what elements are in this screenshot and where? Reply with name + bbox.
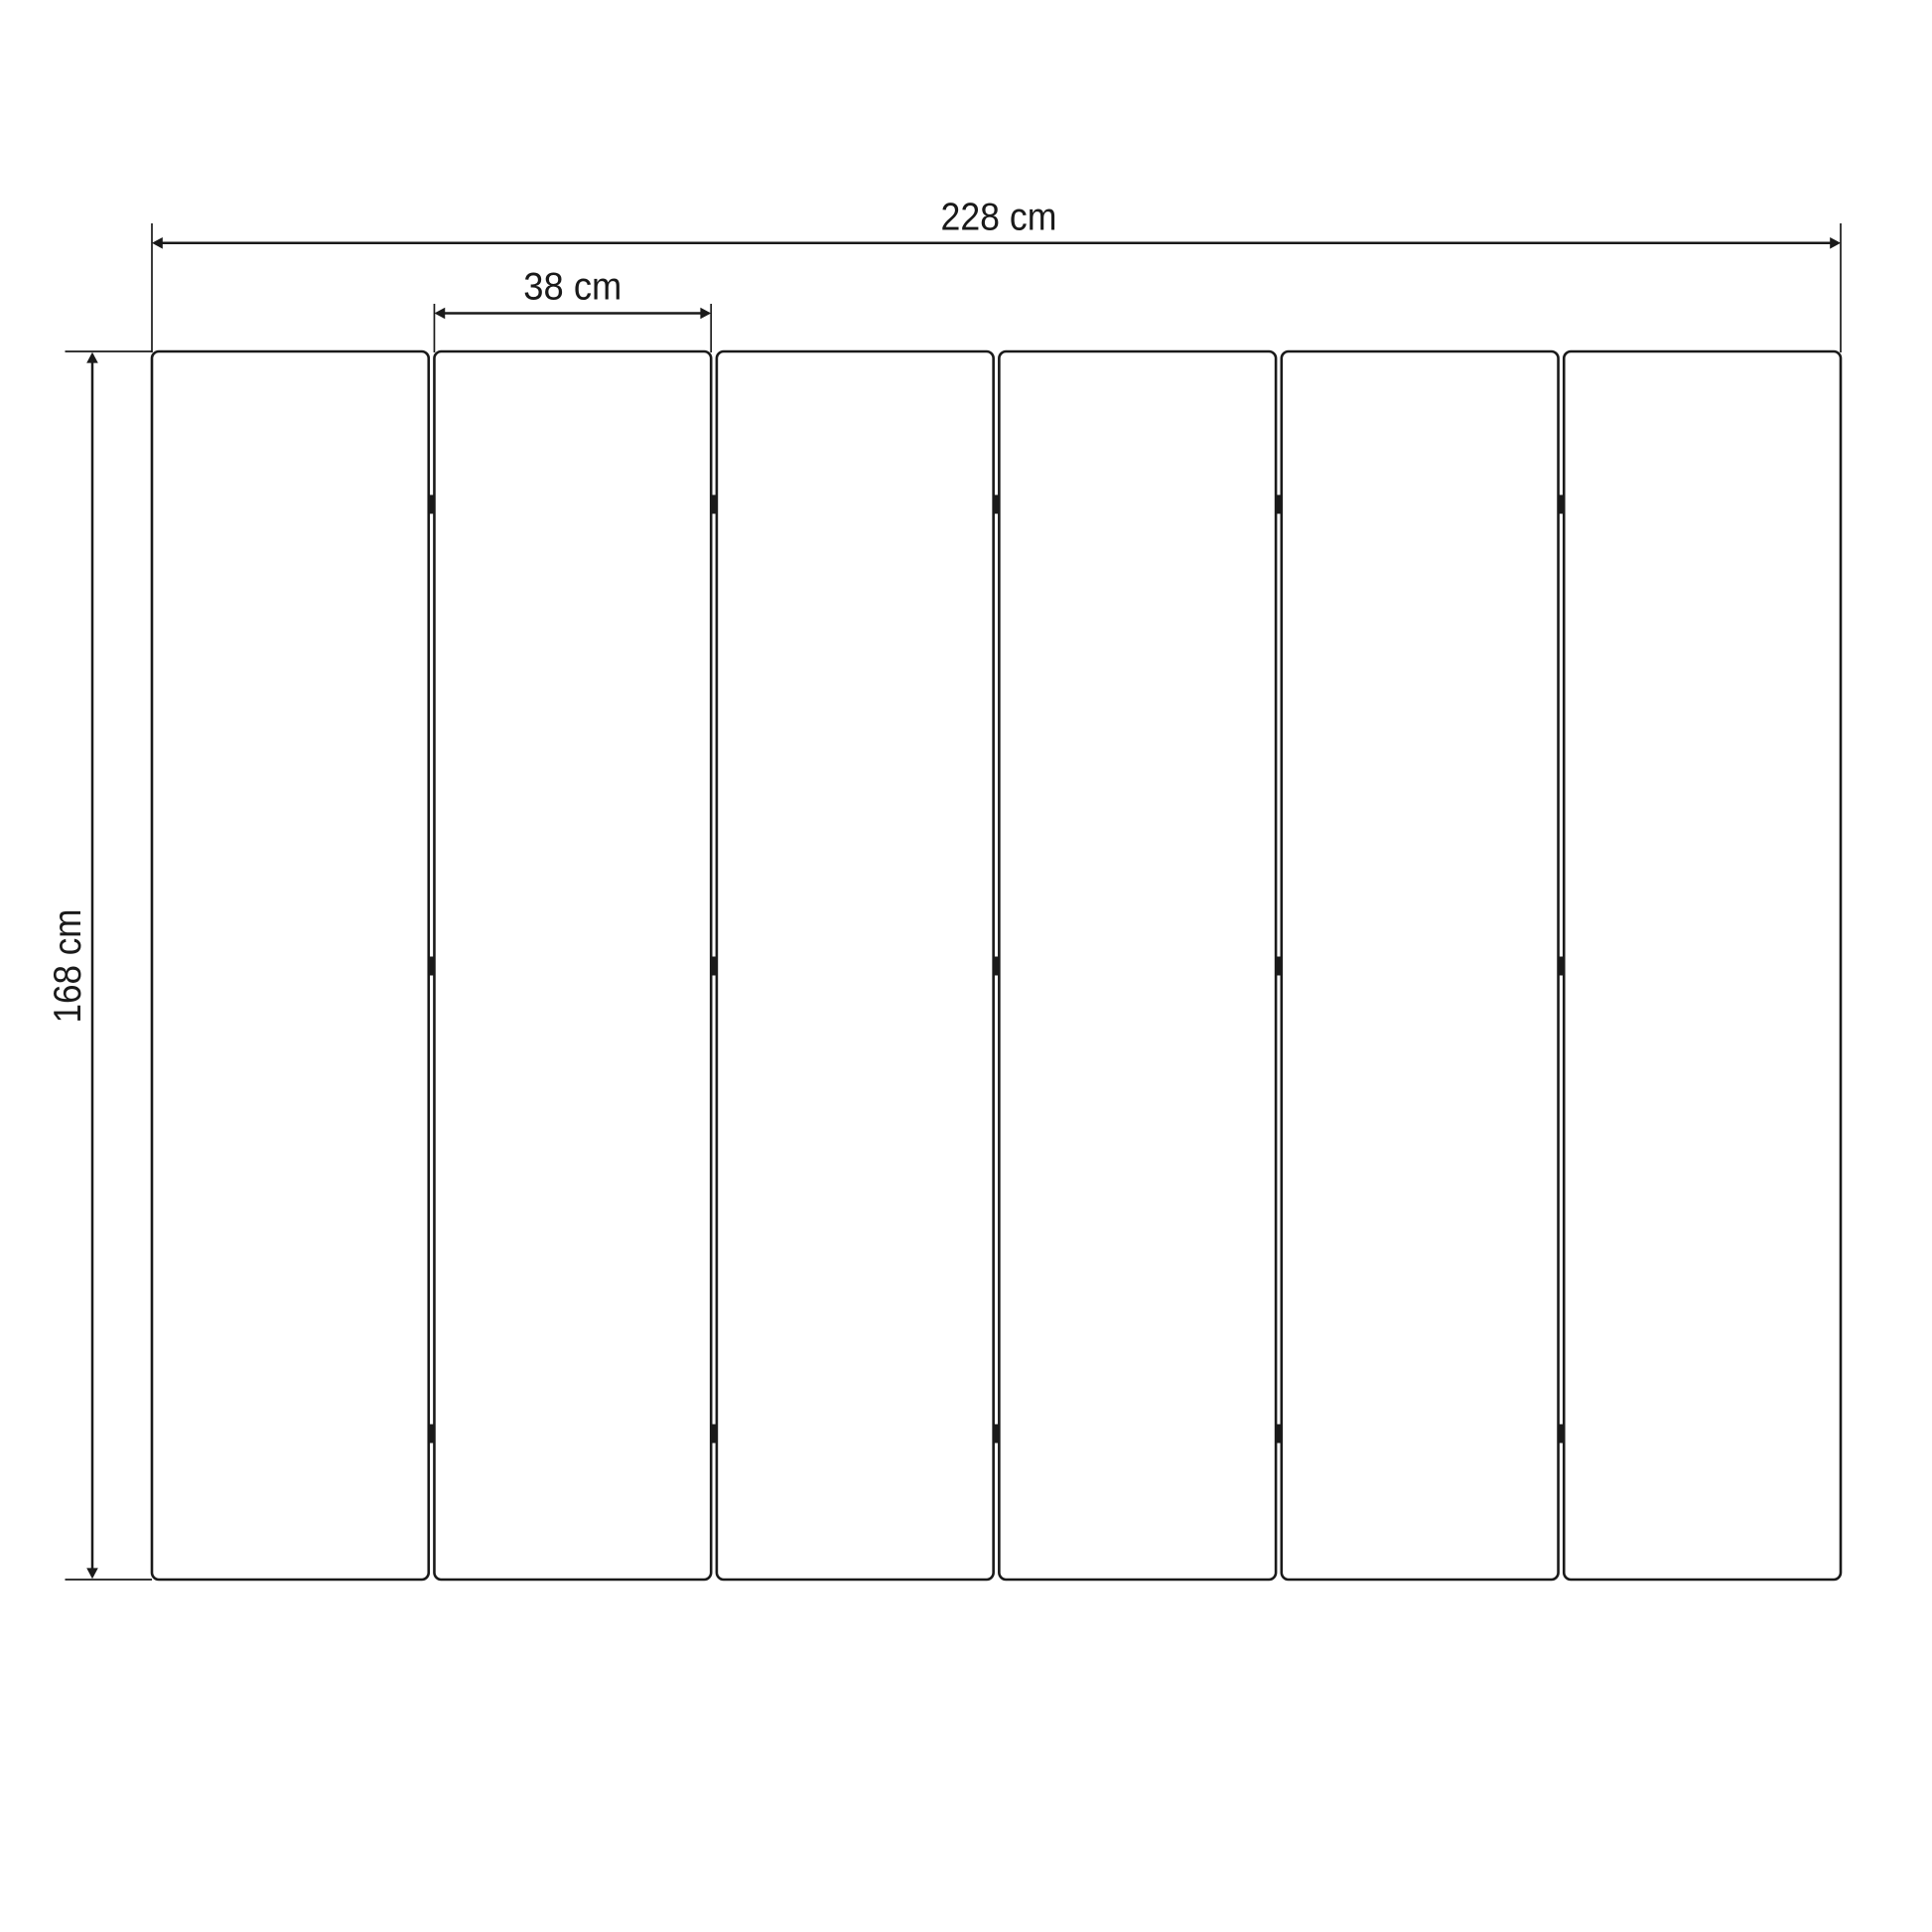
- svg-text:38 cm: 38 cm: [523, 266, 621, 309]
- svg-text:168 cm: 168 cm: [47, 909, 89, 1024]
- svg-text:228 cm: 228 cm: [941, 197, 1057, 239]
